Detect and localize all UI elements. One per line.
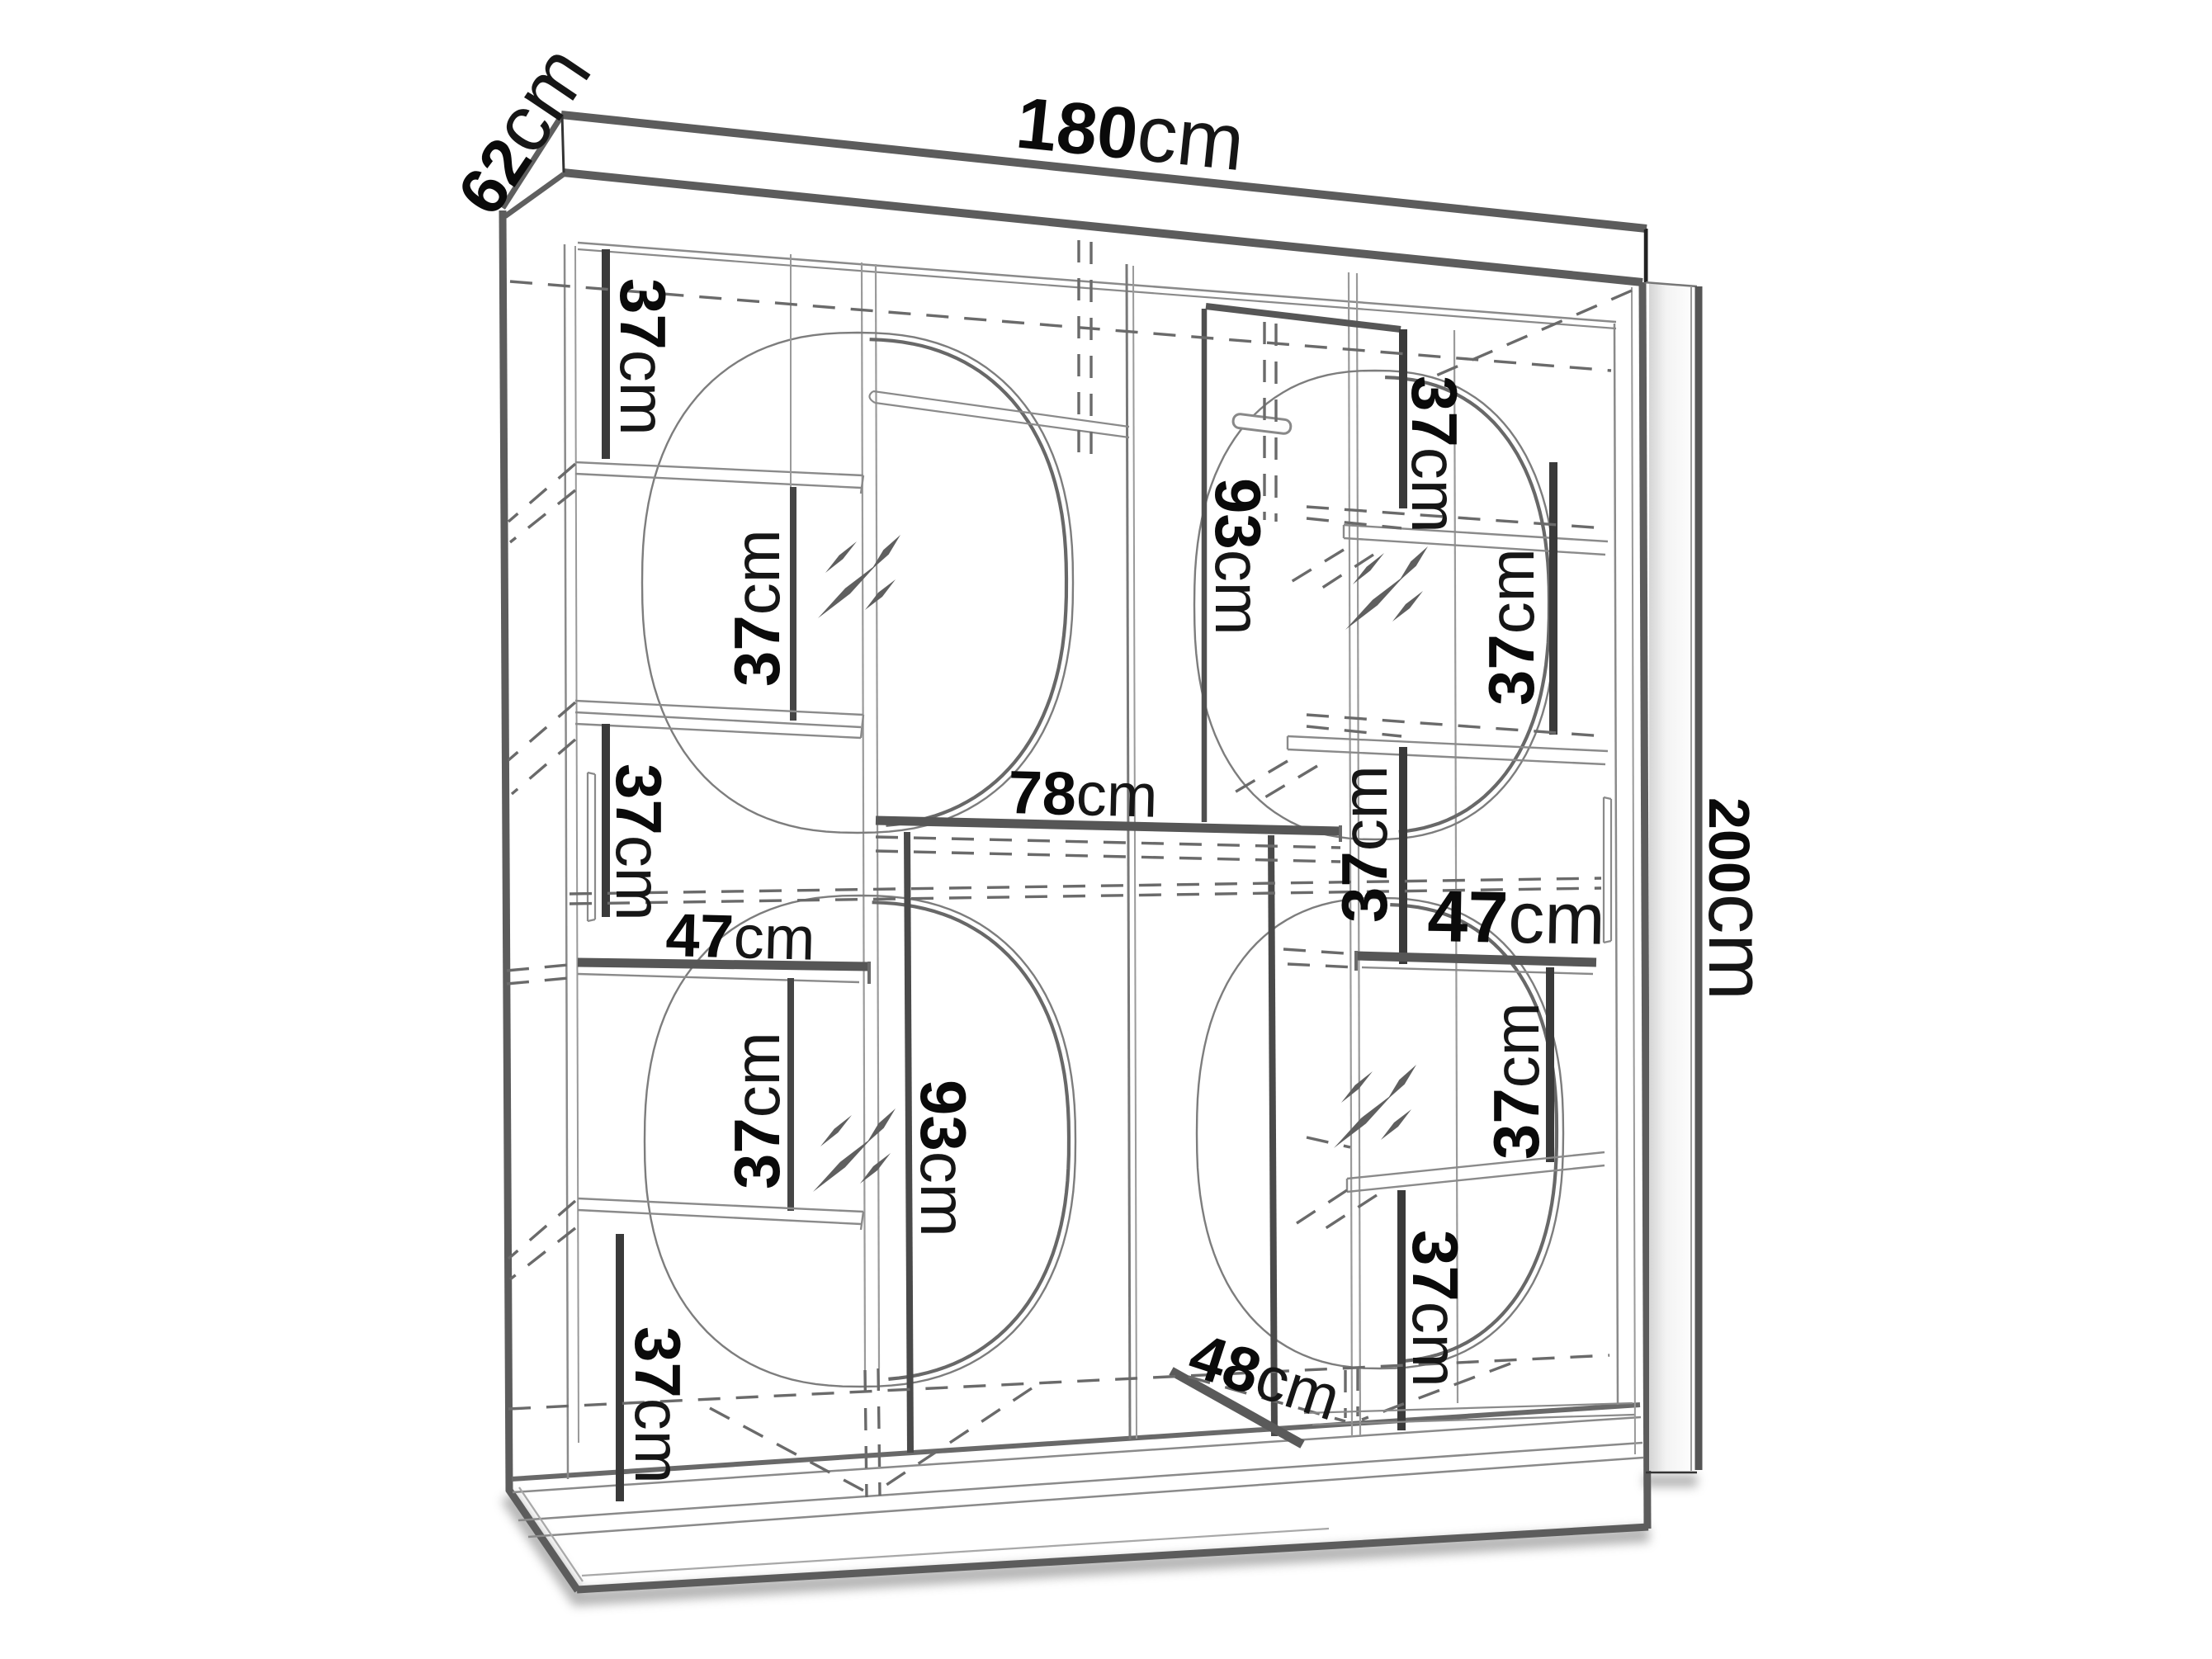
svg-text:37cm: 37cm: [622, 1326, 694, 1484]
svg-text:37cm: 37cm: [1328, 765, 1401, 923]
svg-text:78cm: 78cm: [1008, 758, 1159, 830]
svg-text:37cm: 37cm: [603, 763, 675, 921]
svg-text:37cm: 37cm: [721, 529, 793, 687]
svg-text:37cm: 37cm: [1399, 1230, 1472, 1387]
svg-text:37cm: 37cm: [1480, 1002, 1553, 1160]
svg-text:47cm: 47cm: [665, 900, 816, 973]
svg-text:93cm: 93cm: [907, 1080, 980, 1237]
svg-text:47cm: 47cm: [1427, 875, 1606, 960]
svg-text:93cm: 93cm: [1202, 478, 1274, 636]
svg-text:37cm: 37cm: [607, 278, 679, 436]
svg-text:37cm: 37cm: [721, 1032, 793, 1189]
svg-text:37cm: 37cm: [1398, 376, 1471, 533]
svg-text:37cm: 37cm: [1475, 548, 1548, 706]
